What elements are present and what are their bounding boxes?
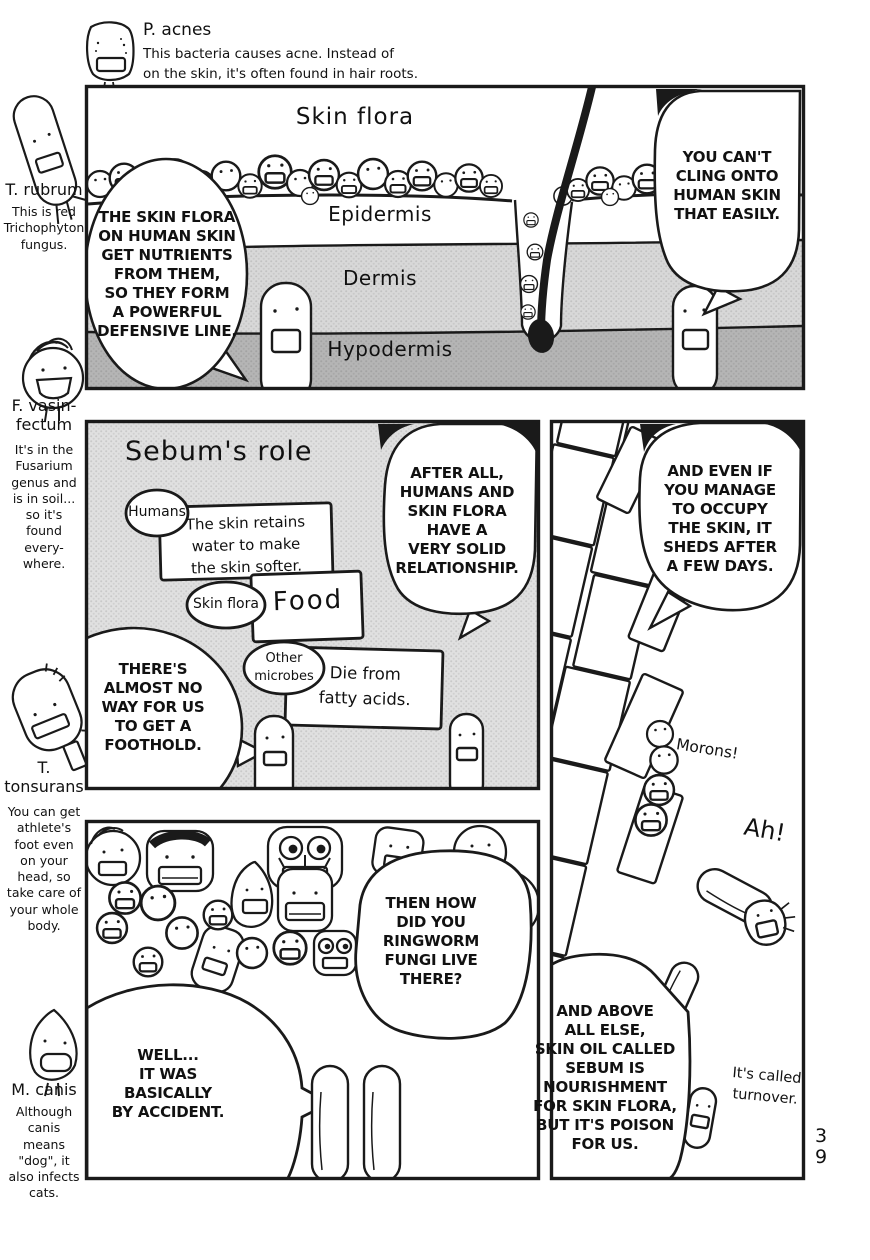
dialogue-relationship: AFTER ALL, HUMANS AND SKIN FLORA HAVE A …: [387, 464, 527, 578]
header-species-description: This bacteria causes acne. Instead of on…: [143, 44, 418, 85]
dialogue-foothold: THERE'S ALMOST NO WAY FOR US TO GET A FO…: [90, 660, 216, 755]
label-skin-flora: Skin flora: [189, 596, 263, 612]
note-skin-softer: The skin retains water to make the skin …: [169, 511, 323, 580]
dialogue-by-accident: WELL... IT WAS BASICALLY BY ACCIDENT.: [100, 1046, 236, 1122]
panel-crowd-art: [86, 822, 539, 1182]
margin-note-name: M. canis: [0, 1080, 88, 1099]
layer-label-hypodermis: Hypodermis: [300, 337, 480, 361]
note-food: Food: [262, 584, 355, 617]
margin-note-name: T. rubrum: [0, 180, 88, 199]
dialogue-then-how: THEN HOW DID YOU RINGWORM FUNGI LIVE THE…: [363, 894, 499, 989]
dialogue-sebum-poison: AND ABOVE ALL ELSE, SKIN OIL CALLED SEBU…: [530, 1002, 680, 1154]
layer-label-epidermis: Epidermis: [300, 202, 460, 226]
margin-note-description: This is red Trichophyton fungus.: [0, 204, 88, 253]
dialogue-sheds: AND EVEN IF YOU MANAGE TO OCCUPY THE SKI…: [650, 462, 790, 576]
margin-note-description: You can get athlete's foot even on your …: [0, 804, 88, 934]
margin-note-name: F. vasin- fectum: [0, 396, 88, 434]
caption-turnover: It's called turnover.: [712, 1062, 819, 1113]
panel-sebum-title: Sebum's role: [125, 436, 313, 467]
panel-skin-title: Skin flora: [255, 104, 455, 130]
margin-note-description: It's in the Fusarium genus and is in soi…: [0, 442, 88, 572]
header-species-name: P. acnes: [143, 20, 211, 40]
page-number: 3 9: [806, 1126, 836, 1169]
layer-label-dermis: Dermis: [300, 266, 460, 290]
note-fatty-acids: Die from fatty acids.: [296, 660, 433, 713]
dialogue-defensive-line: THE SKIN FLORA ON HUMAN SKIN GET NUTRIEN…: [91, 208, 243, 341]
dialogue-cant-cling: YOU CAN'T CLING ONTO HUMAN SKIN THAT EAS…: [662, 148, 792, 224]
manga-page: P. acnes This bacteria causes acne. Inst…: [0, 0, 870, 1260]
p-acnes-character: [87, 22, 133, 95]
margin-note-description: Although canis means "dog", it also infe…: [0, 1104, 88, 1202]
margin-note-name: T. tonsurans: [0, 758, 88, 796]
